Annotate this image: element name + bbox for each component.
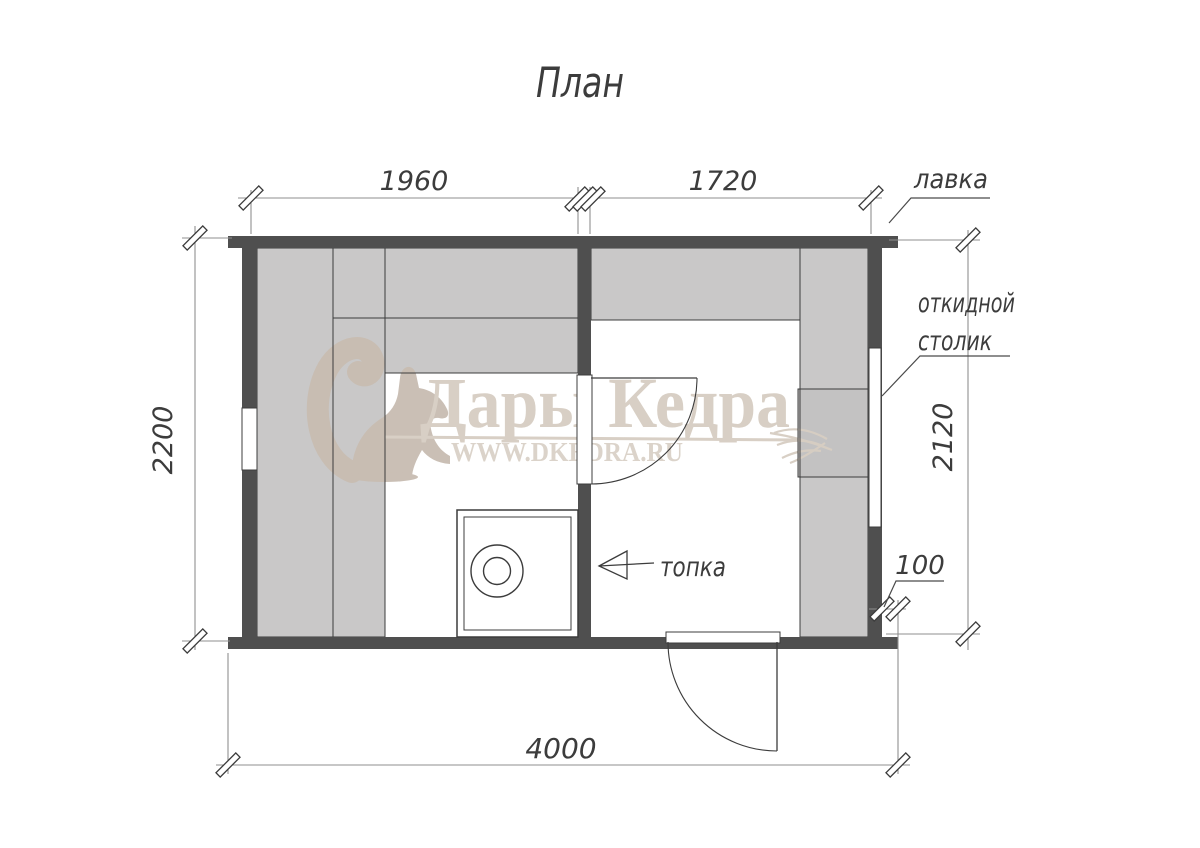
dressing-room-bench-top — [591, 248, 800, 320]
dim-text-top-right-room: 1720 — [689, 166, 758, 197]
stove-inner-body — [464, 517, 571, 630]
plan-title: План — [536, 58, 624, 107]
dim-text-right: 2120 — [928, 403, 959, 472]
dim-text-top-left-room: 1960 — [380, 166, 449, 197]
dim-text-left: 2200 — [148, 406, 179, 475]
floor-plan-drawing: Дары Кедра WWW.DKEDRA.RU — [0, 0, 1200, 848]
watermark-brand-text: Дары Кедра — [420, 363, 790, 443]
window-left-wall — [242, 408, 257, 470]
floor-plan-page: Дары Кедра WWW.DKEDRA.RU — [0, 0, 1200, 848]
wall-top — [228, 236, 898, 248]
sauna-bench-top-tier1 — [333, 248, 578, 318]
folding-table-folded — [869, 348, 881, 527]
folding-table-leader — [882, 356, 1010, 396]
firebox-label: топка — [660, 552, 726, 583]
squirrel-base — [350, 472, 418, 482]
wall-bottom — [228, 637, 898, 649]
stove-outer-body — [457, 510, 578, 637]
folding-table-label-line2: столик — [918, 326, 993, 357]
watermark-url-text: WWW.DKEDRA.RU — [451, 437, 683, 467]
dim-text-offset: 100 — [895, 551, 945, 581]
dim-ext-left — [182, 238, 232, 641]
dim-ext-top — [251, 187, 871, 234]
entry-door-swing-arc — [668, 642, 777, 751]
dressing-room-bench-mid-section — [798, 389, 870, 477]
stove-chimney-inner — [484, 558, 511, 585]
entry-door-opening — [666, 632, 780, 643]
bench-label: лавка — [913, 164, 988, 195]
folding-table-label-line1: откидной — [918, 288, 1015, 319]
stove — [457, 510, 578, 637]
annotation-leaders — [882, 198, 1010, 607]
partition-door-opening — [577, 375, 592, 484]
firebox-arrow — [599, 551, 654, 579]
dim-text-bottom: 4000 — [525, 732, 596, 765]
bench-label-leader — [889, 198, 990, 223]
stove-chimney-outer — [471, 545, 523, 597]
